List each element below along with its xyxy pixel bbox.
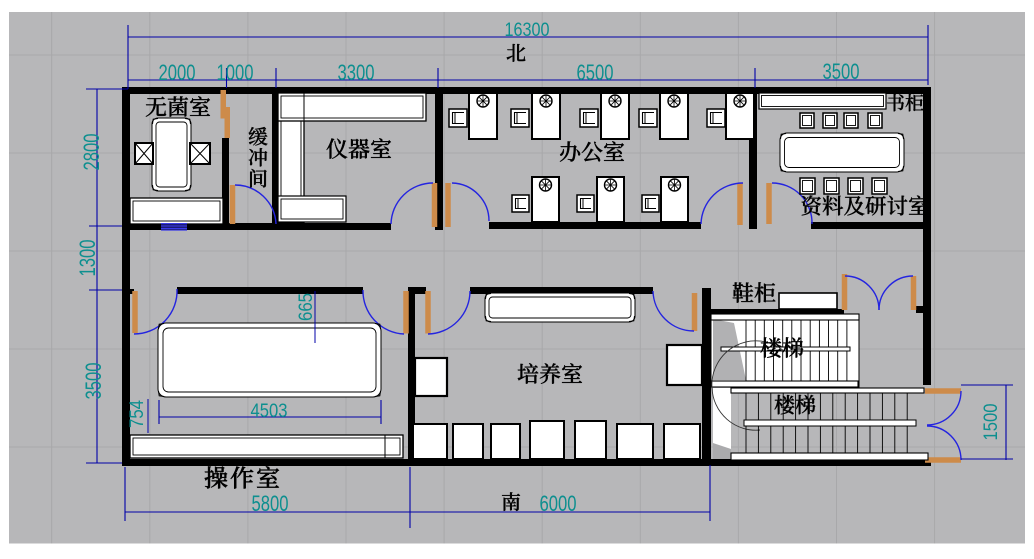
- svg-text:754: 754: [127, 400, 148, 428]
- svg-text:2000: 2000: [159, 60, 196, 85]
- svg-text:16300: 16300: [505, 20, 550, 41]
- svg-text:3300: 3300: [338, 60, 375, 85]
- svg-text:3500: 3500: [81, 363, 106, 400]
- svg-text:1500: 1500: [981, 404, 1002, 441]
- svg-text:665: 665: [296, 293, 317, 321]
- svg-text:6500: 6500: [577, 60, 614, 85]
- svg-text:4503: 4503: [251, 401, 288, 422]
- svg-text:2800: 2800: [79, 134, 104, 171]
- svg-text:1300: 1300: [75, 240, 100, 277]
- svg-text:6000: 6000: [540, 491, 577, 516]
- svg-text:5800: 5800: [252, 491, 289, 516]
- svg-text:1000: 1000: [217, 60, 254, 85]
- svg-text:3500: 3500: [823, 59, 860, 84]
